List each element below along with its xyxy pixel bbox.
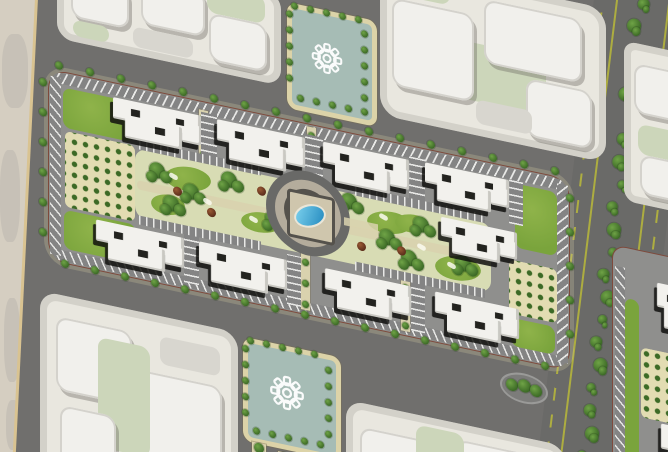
- neighbor-court: [160, 336, 220, 377]
- parking-stalls: [287, 254, 301, 307]
- parking-stalls: [409, 156, 425, 203]
- plot-shrub-icon: [361, 107, 368, 115]
- plot-shrub-icon: [361, 93, 368, 101]
- plot-shrub-icon: [301, 436, 308, 444]
- tree-icon: [302, 279, 309, 287]
- plot-shrub-icon: [269, 430, 276, 438]
- plot-shrub-icon: [295, 346, 302, 354]
- parking-stalls: [509, 179, 523, 226]
- building-end-wing: [286, 144, 305, 167]
- plot-shrub-icon: [361, 77, 368, 85]
- parking-stalls: [411, 280, 425, 333]
- far-east-top-block: [624, 41, 668, 216]
- tree-icon: [530, 384, 542, 399]
- tree-cluster: [229, 180, 230, 181]
- plot-shrub-icon: [297, 94, 304, 102]
- plot-shrub-icon: [286, 9, 293, 17]
- tree-icon: [39, 197, 47, 207]
- building-back-wing: [661, 423, 668, 452]
- tree-icon: [506, 378, 518, 393]
- corner-landscape-island: [500, 368, 548, 408]
- plot-shrub-icon: [361, 61, 368, 69]
- southwest-block: [40, 291, 238, 452]
- gear-icon: [308, 35, 346, 81]
- perimeter-parking-west: [50, 76, 61, 256]
- building-front-wing: [664, 303, 668, 336]
- plot-shrub-icon: [313, 97, 320, 105]
- median-tree-icon: [632, 27, 641, 36]
- neighbor-building: [526, 78, 592, 150]
- plot-shrub-icon: [325, 365, 332, 373]
- tree-icon: [241, 100, 249, 110]
- tree-icon: [551, 166, 559, 176]
- tree-icon: [39, 107, 47, 117]
- tree-icon: [55, 61, 63, 71]
- parking-stalls: [184, 232, 199, 285]
- tree-icon: [489, 153, 497, 163]
- plot-shrub-icon: [325, 413, 332, 421]
- plot-shrub-icon: [242, 392, 249, 400]
- tree-icon: [272, 107, 280, 117]
- tree-cluster: [463, 263, 464, 264]
- tree-icon: [520, 160, 528, 170]
- building-end-wing: [390, 167, 409, 190]
- tree-icon: [303, 113, 311, 123]
- plot-shrub-icon: [242, 360, 249, 368]
- tree-cluster: [191, 192, 192, 193]
- tree-icon: [396, 133, 404, 143]
- tree-cluster: [409, 258, 410, 259]
- plot-shrub-icon: [325, 381, 332, 389]
- east-parcel-lawn: [625, 298, 639, 452]
- plot-shrub-icon: [286, 57, 293, 65]
- building-end-wing: [268, 267, 287, 290]
- plot-shrub-icon: [285, 433, 292, 441]
- tree-icon: [302, 258, 309, 266]
- tree-icon: [39, 137, 47, 147]
- plot-shrub-icon: [286, 73, 293, 81]
- street-planter: [252, 442, 266, 452]
- site-plan-scene: [0, 0, 668, 452]
- tree-cluster: [349, 201, 350, 202]
- building-end-wing: [165, 245, 184, 268]
- gear-icon: [266, 368, 308, 419]
- northeast-block: [380, 0, 606, 163]
- east-parcel: [612, 244, 668, 452]
- tree-icon: [254, 442, 264, 452]
- neighbor-building: [634, 63, 668, 123]
- tree-icon: [39, 167, 47, 177]
- tree-icon: [458, 146, 466, 156]
- plot-shrub-icon: [311, 349, 318, 357]
- plot-shrub-icon: [279, 343, 286, 351]
- plot-shrub-icon: [247, 336, 254, 344]
- tree-icon: [427, 140, 435, 150]
- tree-cluster: [157, 170, 158, 171]
- tree-cluster: [171, 203, 172, 204]
- plot-shrub-icon: [242, 408, 249, 416]
- neighbor-building: [640, 154, 668, 203]
- pedestrian-walkway: [301, 253, 310, 311]
- east-parcel-orchard: [641, 347, 668, 426]
- plot-shrub-icon: [286, 41, 293, 49]
- building-end-wing: [392, 293, 411, 316]
- plot-shrub-icon: [361, 29, 368, 37]
- orchard-grid: [65, 131, 135, 222]
- plot-shrub-icon: [242, 344, 249, 352]
- tree-icon: [179, 87, 187, 97]
- neighbor-building: [456, 439, 548, 452]
- plot-shrub-icon: [242, 376, 249, 384]
- apartment-building: [661, 423, 668, 452]
- tree-cluster: [421, 224, 422, 225]
- neighbor-green: [416, 424, 464, 452]
- plot-shrub-icon: [253, 426, 260, 434]
- tree-icon: [518, 377, 531, 393]
- tree-cluster: [387, 237, 388, 238]
- neighbor-building: [392, 0, 474, 103]
- tree-icon: [39, 77, 47, 87]
- perimeter-parking-east: [557, 183, 568, 363]
- south-block: [346, 400, 566, 452]
- tree-icon: [39, 227, 47, 237]
- plot-shrub-icon: [361, 45, 368, 53]
- tree-icon: [148, 80, 156, 90]
- median-tree-icon: [642, 6, 650, 14]
- north-service-plot: [287, 2, 377, 127]
- plan-skew-layer: [0, 0, 668, 452]
- east-parcel-parking: [615, 266, 625, 452]
- plot-shrub-icon: [286, 25, 293, 33]
- apartment-building: [657, 283, 668, 338]
- tree-icon: [365, 127, 373, 137]
- plot-shrub-icon: [317, 440, 324, 448]
- tree-icon: [302, 300, 309, 308]
- south-service-plot: [243, 337, 341, 452]
- tree-icon: [86, 67, 94, 77]
- plot-shrub-icon: [325, 429, 332, 437]
- plot-shrub-icon: [325, 397, 332, 405]
- tree-icon: [334, 120, 342, 130]
- tree-icon: [117, 74, 125, 84]
- plot-shrub-icon: [345, 104, 352, 112]
- building-end-wing: [182, 122, 201, 145]
- plot-shrub-icon: [329, 100, 336, 108]
- tree-icon: [210, 94, 218, 104]
- plot-shrub-icon: [263, 339, 270, 347]
